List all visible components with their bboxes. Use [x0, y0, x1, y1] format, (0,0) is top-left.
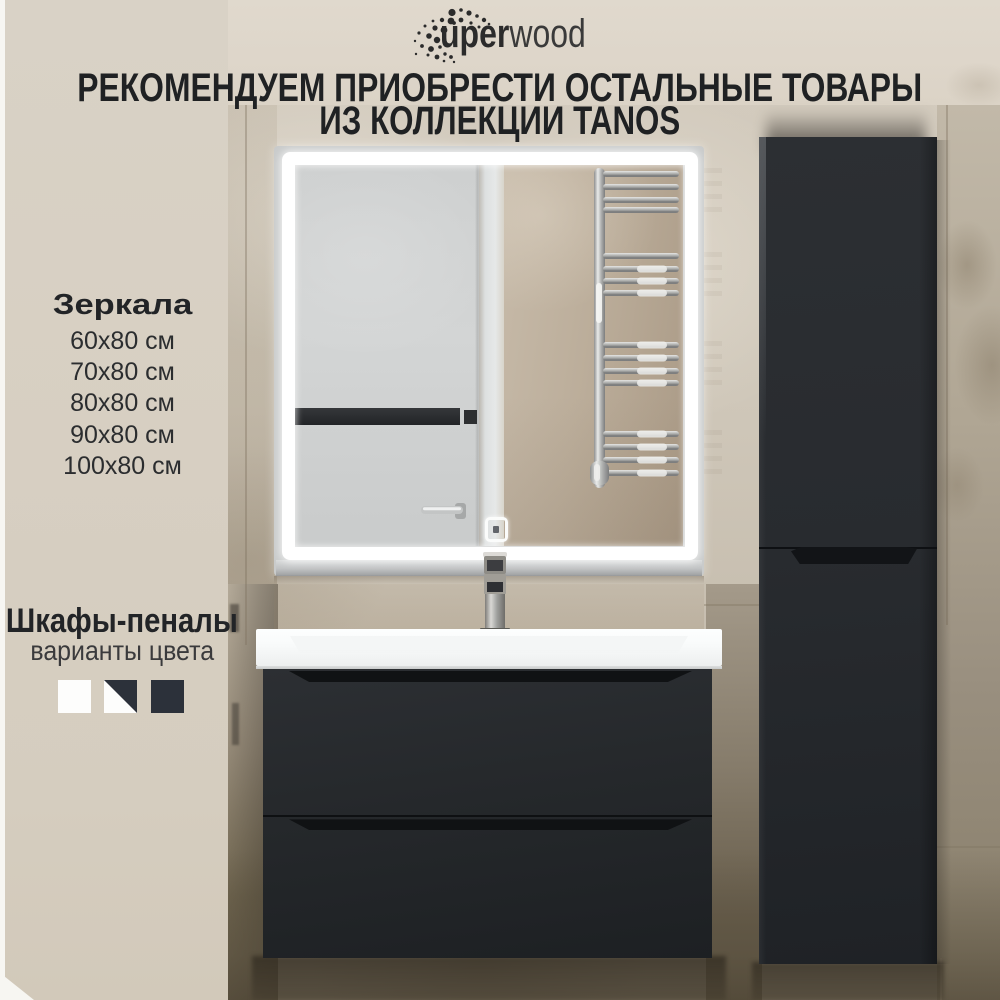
svg-text:uperwood: uperwood [440, 11, 586, 56]
